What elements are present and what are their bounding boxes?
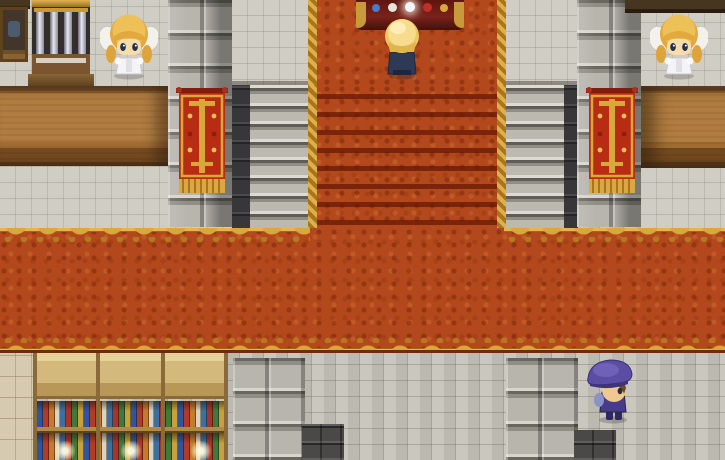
tan-wall (0, 353, 33, 460)
organ-crown (32, 0, 90, 7)
altar-acolyte-sprite[interactable] (380, 14, 424, 80)
stair-trim-left (308, 85, 317, 232)
book-row-1 (37, 401, 224, 427)
stair-base-right (506, 358, 578, 460)
left-cabinet[interactable] (0, 7, 28, 62)
player-sprite[interactable] (582, 350, 642, 424)
organ-pipe-caps (34, 8, 88, 12)
stair-trim-right (497, 85, 506, 232)
candle-glow (189, 441, 213, 460)
cabinet-vessel (8, 21, 20, 37)
altar-offering-blue (372, 4, 380, 12)
landing-carpet-trim-right (497, 0, 506, 95)
right-priestess-sprite[interactable] (650, 12, 708, 80)
down-steps-left (302, 424, 344, 460)
altar-offering-white (388, 3, 397, 12)
altar-orb (405, 2, 415, 12)
carpet-border-bottom (0, 330, 725, 352)
carpet-step-shadows (308, 85, 506, 232)
stone-steps-right (506, 85, 564, 232)
down-steps-right (574, 430, 616, 460)
altar-offering-red (423, 3, 432, 12)
stair-base-left (233, 358, 305, 460)
organ-pipe (36, 8, 44, 54)
landing-carpet-trim-left (308, 0, 317, 95)
organ-keys (36, 58, 86, 63)
carpet-border-top-right (504, 228, 725, 250)
shelf-frame (161, 353, 165, 460)
altar-gold-end-right (454, 2, 464, 28)
candle-glow (53, 441, 77, 460)
bookshelves[interactable] (33, 353, 228, 460)
organ-base (28, 74, 94, 86)
altar-offering-gold (440, 4, 448, 12)
shelf-frame (33, 353, 37, 460)
stone-steps-left (250, 85, 308, 232)
bookshelf-top (33, 353, 228, 399)
game-viewport[interactable] (0, 0, 725, 460)
cabinet-shelf (3, 50, 25, 54)
shelf-frame (96, 353, 100, 460)
stair-rail-right (564, 85, 578, 232)
organ-pipe (78, 8, 86, 54)
carpet-border-top-left (0, 228, 310, 250)
altar-gold-end-left (356, 2, 366, 28)
pipe-organ[interactable] (32, 0, 90, 88)
organ-console (32, 54, 90, 74)
organ-pipe (50, 8, 58, 54)
right-banner[interactable] (586, 86, 638, 198)
candle-glow (119, 441, 143, 460)
left-banner[interactable] (176, 86, 228, 198)
left-priestess-sprite[interactable] (100, 12, 158, 80)
left-counter[interactable] (0, 86, 168, 166)
stair-rail-left (232, 85, 250, 232)
organ-pipe (64, 8, 72, 54)
shelf-frame (224, 353, 228, 460)
right-counter[interactable] (641, 86, 725, 168)
